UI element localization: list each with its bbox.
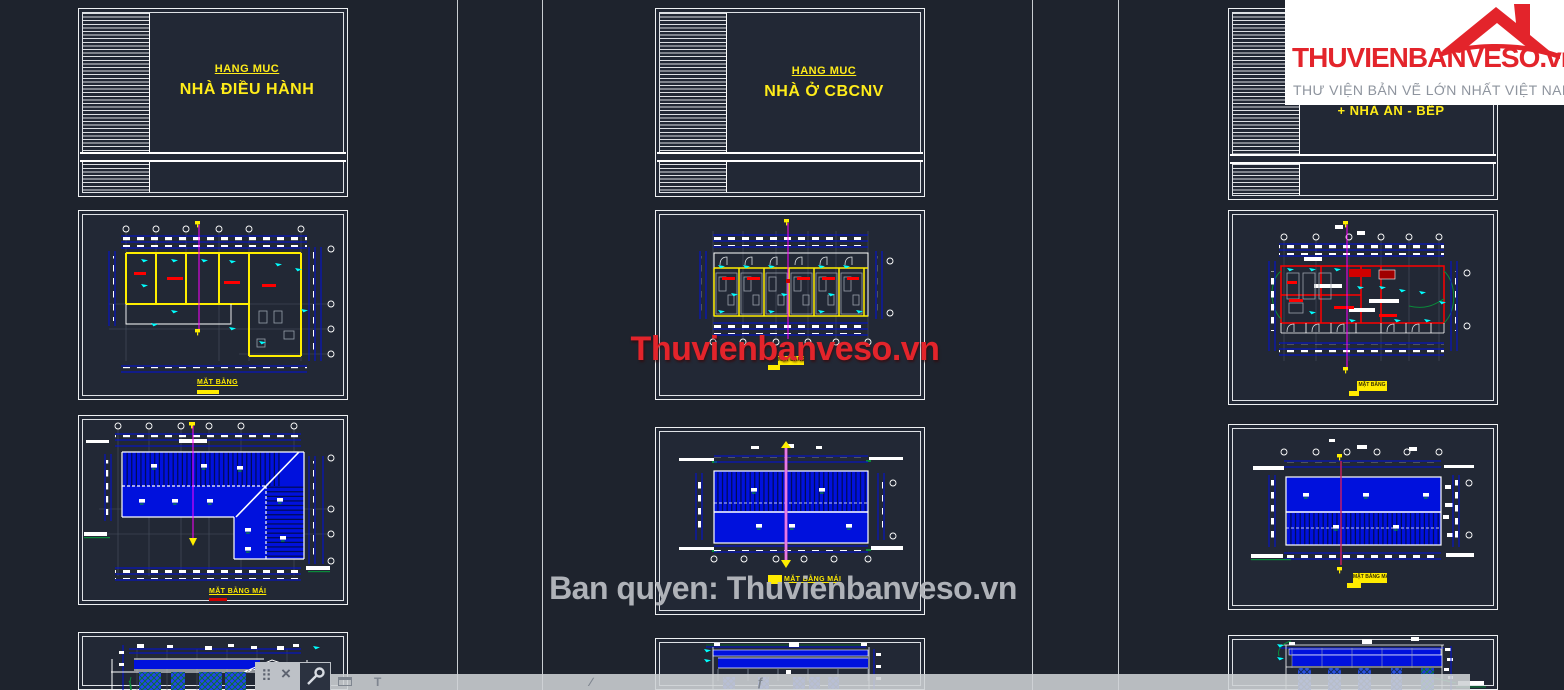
roof-plan-drawing [1229, 425, 1499, 611]
caption-highlight [1349, 391, 1359, 396]
floor-plan-caption: MẶT BẰNG [197, 379, 238, 386]
title-block-text: HANG MUC NHÀ ĐIỀU HÀNH [151, 59, 343, 99]
floor-plan-drawing [79, 211, 349, 401]
sheet-right-roof-plan[interactable]: MẶT BẰNG MÁI [1228, 424, 1498, 610]
sheet-mid-title-block[interactable]: HANG MUC NHÀ Ở CBCNV [655, 8, 925, 197]
sheet-edge-line-1 [457, 0, 458, 690]
caption-highlight [1347, 583, 1361, 588]
floor-plan-drawing [1229, 211, 1499, 406]
logo-brand-text: THUVIENBANVESO.vn [1292, 42, 1564, 74]
title-name-overflow: + NHÀ ĂN - BẾP [1289, 103, 1493, 118]
site-logo: THUVIENBANVESO.vn THƯ VIỆN BẢN VẼ LỚN NH… [1285, 0, 1564, 105]
title-name: NHÀ Ở CBCNV [728, 83, 920, 101]
watermark-bottom: Ban quyen: Thuvienbanveso.vn [543, 570, 1023, 607]
caption-highlight [197, 390, 219, 394]
sheet-mid-floor-plan[interactable]: MẶT BẰNG [655, 210, 925, 400]
sheet-right-floor-plan[interactable]: MẶT BẰNG [1228, 210, 1498, 405]
wrench-icon [300, 663, 330, 690]
floor-plan-caption: MẶT BẰNG [1357, 381, 1387, 391]
text-tool-icon[interactable]: T [374, 675, 381, 689]
title-block-text: HANG MUC NHÀ Ở CBCNV [728, 61, 920, 101]
title-name: NHÀ ĐIỀU HÀNH [151, 81, 343, 99]
slash-tool-icon[interactable]: ∕ [590, 675, 592, 689]
watermark-center: Thuvienbanveso.vn [615, 330, 955, 369]
wrench-button[interactable] [300, 663, 330, 690]
sheet-left-roof-plan[interactable]: MẶT BẰNG MÁI [78, 415, 348, 605]
title-block-divider [1230, 154, 1496, 164]
title-block-schedule-lines [83, 13, 150, 192]
title-heading: HANG MUC [215, 63, 280, 75]
title-block-schedule-lines [660, 13, 727, 192]
floor-plan-drawing [656, 211, 926, 401]
roof-plan-caption: MẶT BẰNG MÁI [209, 588, 266, 595]
sheet-left-floor-plan[interactable]: MẶT BẰNG [78, 210, 348, 400]
sheet-edge-line-3 [1032, 0, 1033, 690]
caption-underline [209, 598, 227, 601]
sheet-edge-line-4 [1118, 0, 1119, 690]
close-icon[interactable]: × [281, 664, 291, 684]
logo-tagline: THƯ VIỆN BẢN VẼ LỚN NHẤT VIỆT NAM [1293, 82, 1564, 98]
roof-plan-caption: MẶT BẰNG MÁI [1353, 573, 1387, 583]
cad-canvas[interactable]: HANG MUC NHÀ ĐIỀU HÀNH [0, 0, 1564, 690]
toolbar-strip[interactable] [255, 674, 1470, 690]
title-block-divider [657, 152, 923, 162]
window-tool-icon[interactable] [338, 677, 352, 686]
roof-plan-drawing [79, 416, 349, 606]
fn-tool-icon[interactable]: ƒ [757, 675, 764, 689]
title-block-divider [80, 152, 346, 162]
title-heading: HANG MUC [792, 65, 857, 77]
sheet-left-title-block[interactable]: HANG MUC NHÀ ĐIỀU HÀNH [78, 8, 348, 197]
drag-handle-icon[interactable]: ⠿ [261, 667, 272, 685]
